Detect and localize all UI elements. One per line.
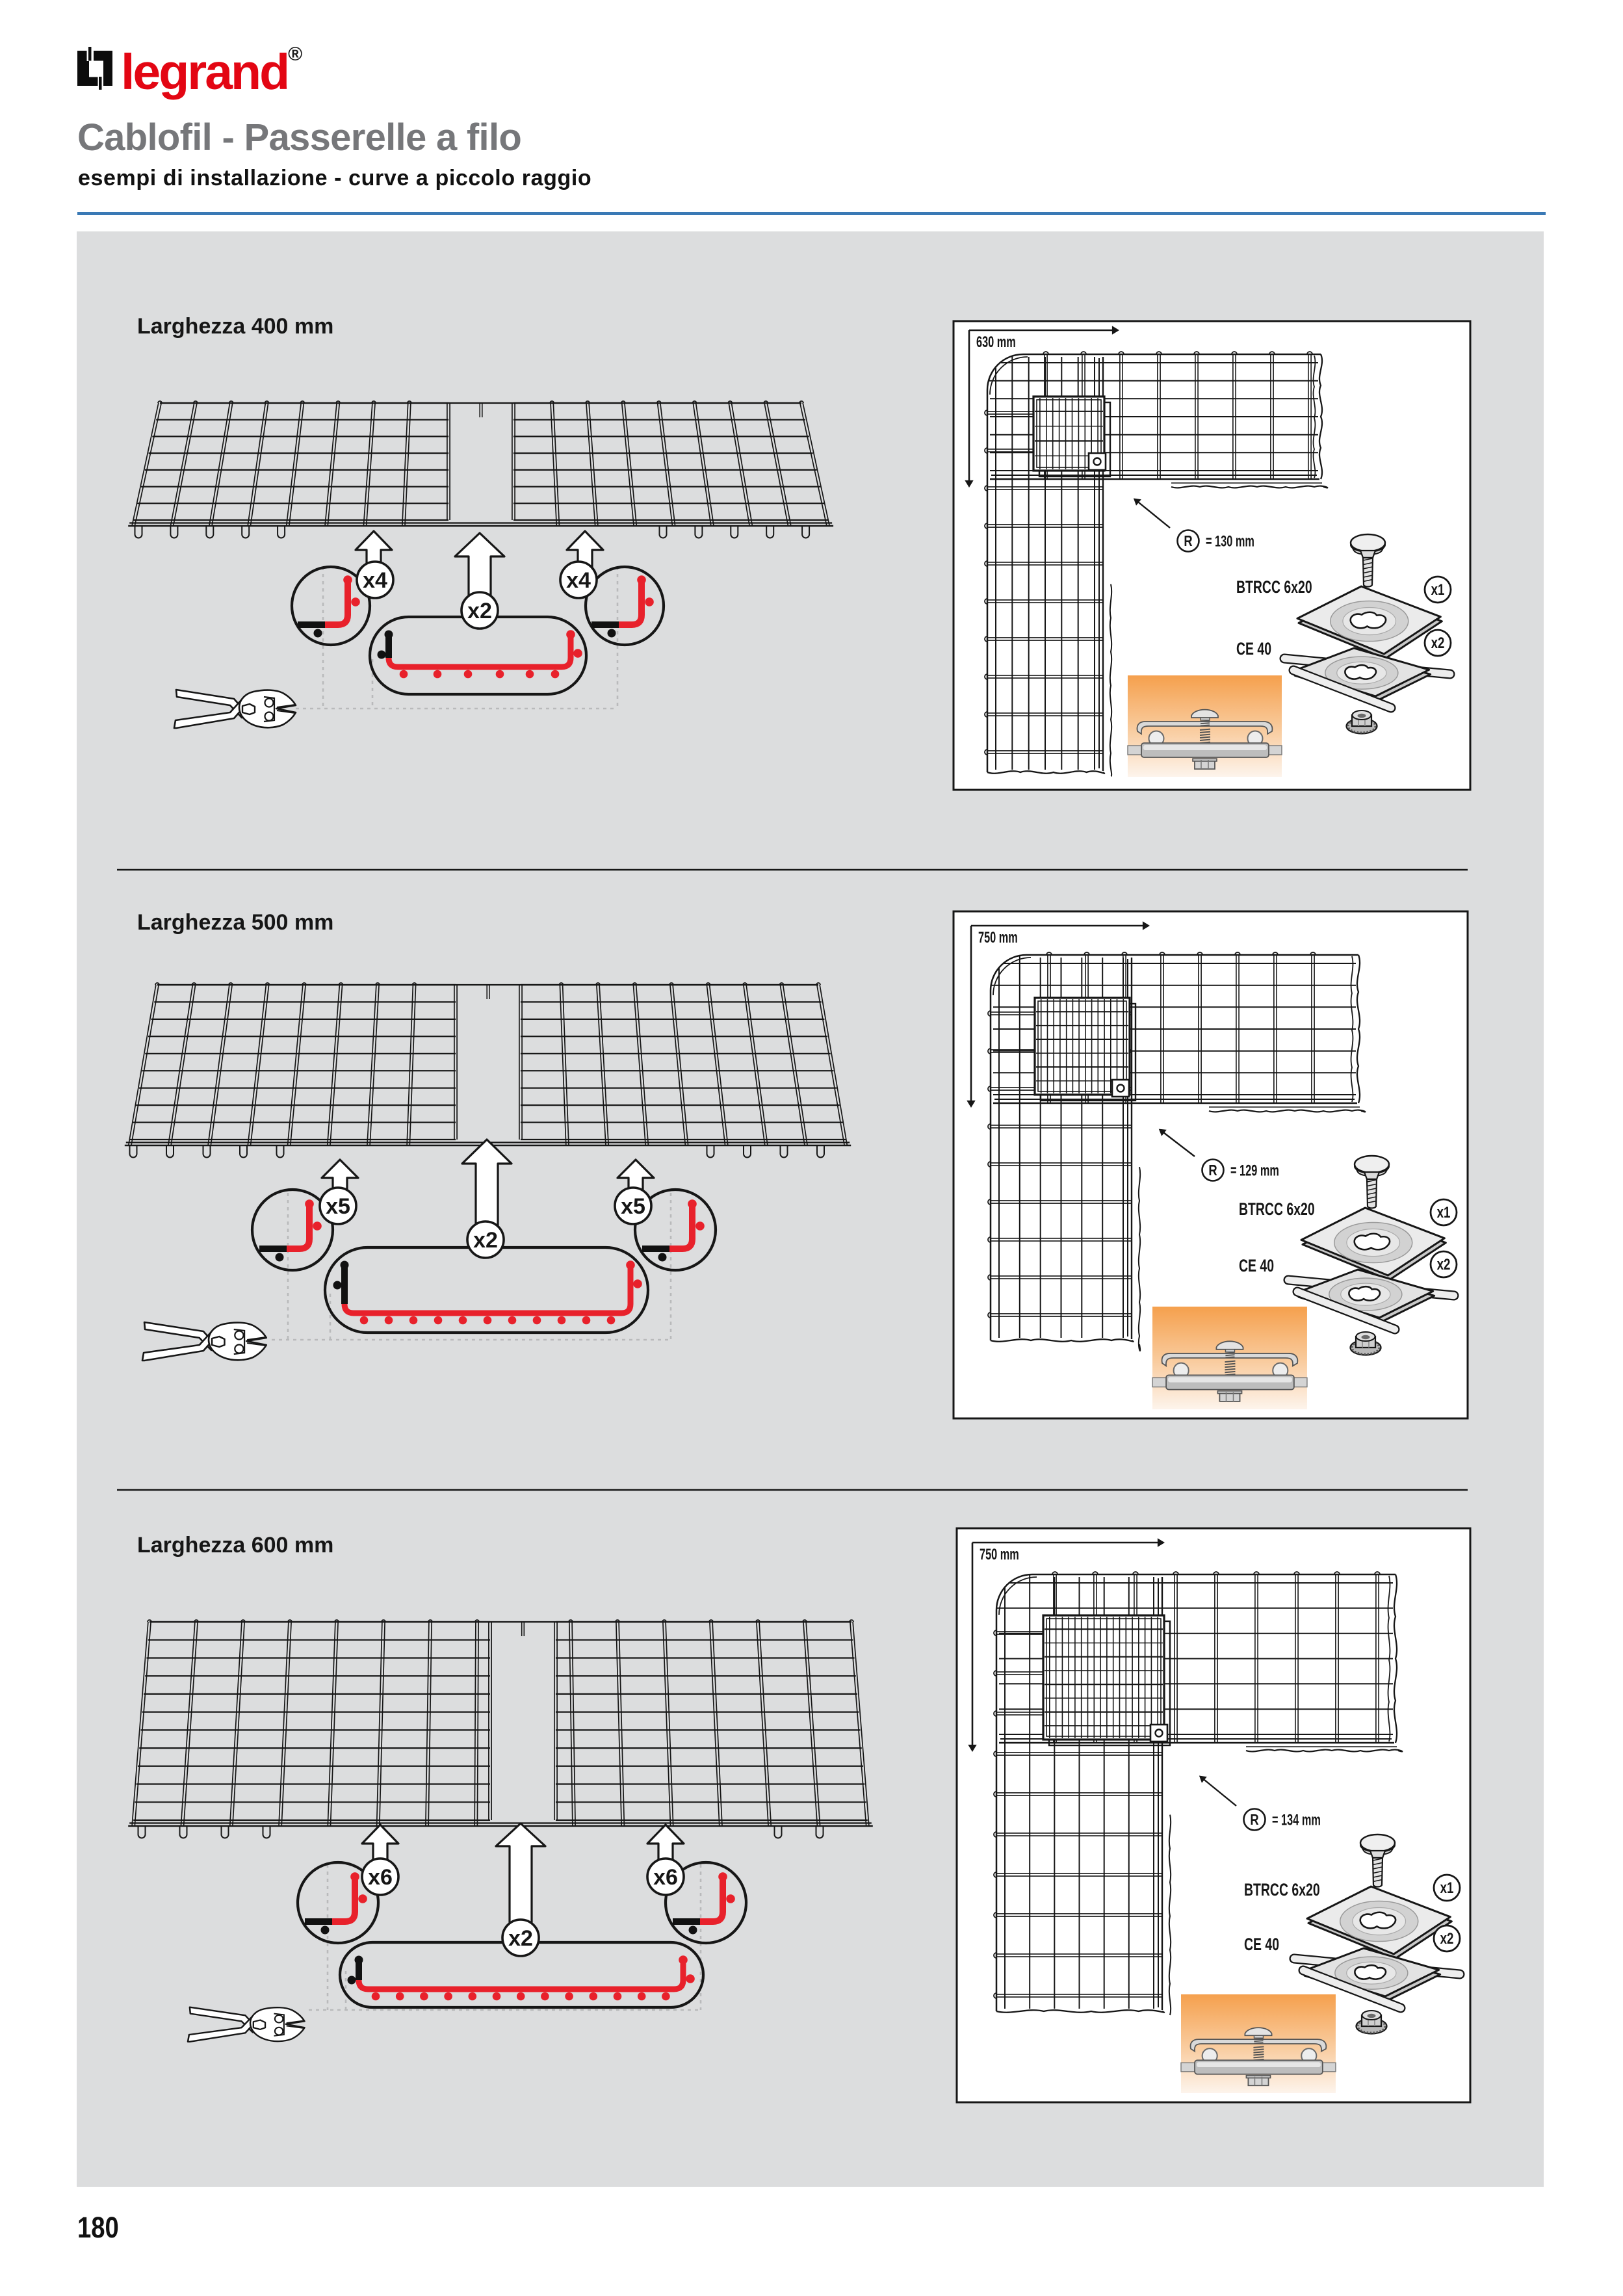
svg-text:Larghezza 500 mm: Larghezza 500 mm [137, 910, 333, 935]
svg-text:x2: x2 [1431, 634, 1445, 652]
svg-text:x1: x1 [1431, 581, 1445, 599]
svg-text:x1: x1 [1440, 1879, 1454, 1897]
svg-text:x2: x2 [473, 1228, 498, 1253]
svg-text:x5: x5 [621, 1194, 645, 1219]
svg-text:= 130 mm: = 130 mm [1206, 532, 1254, 550]
svg-text:750 mm: 750 mm [980, 1546, 1019, 1563]
svg-text:x2: x2 [1440, 1930, 1454, 1948]
svg-text:x5: x5 [326, 1194, 350, 1219]
svg-text:BTRCC 6x20: BTRCC 6x20 [1239, 1199, 1315, 1219]
svg-text:x6: x6 [653, 1865, 678, 1890]
svg-text:x2: x2 [1437, 1256, 1451, 1273]
svg-text:= 129 mm: = 129 mm [1230, 1162, 1279, 1179]
svg-text:Larghezza 600 mm: Larghezza 600 mm [137, 1533, 333, 1558]
svg-text:x6: x6 [368, 1865, 393, 1890]
svg-text:= 134 mm: = 134 mm [1272, 1811, 1321, 1829]
svg-text:R: R [1184, 533, 1192, 549]
svg-text:Larghezza 400 mm: Larghezza 400 mm [137, 314, 333, 339]
svg-text:750 mm: 750 mm [978, 929, 1018, 946]
svg-text:x1: x1 [1437, 1204, 1451, 1221]
svg-text:x2: x2 [467, 599, 492, 623]
svg-text:x4: x4 [363, 568, 387, 593]
svg-text:x4: x4 [566, 568, 591, 593]
svg-text:CE 40: CE 40 [1239, 1256, 1274, 1275]
svg-text:R: R [1250, 1812, 1258, 1828]
svg-text:BTRCC 6x20: BTRCC 6x20 [1236, 577, 1312, 597]
svg-text:630 mm: 630 mm [976, 333, 1016, 351]
svg-text:R: R [1208, 1162, 1217, 1179]
svg-text:x2: x2 [508, 1926, 533, 1951]
svg-text:CE 40: CE 40 [1236, 639, 1271, 659]
svg-text:BTRCC 6x20: BTRCC 6x20 [1244, 1880, 1320, 1899]
svg-text:CE 40: CE 40 [1244, 1935, 1279, 1954]
